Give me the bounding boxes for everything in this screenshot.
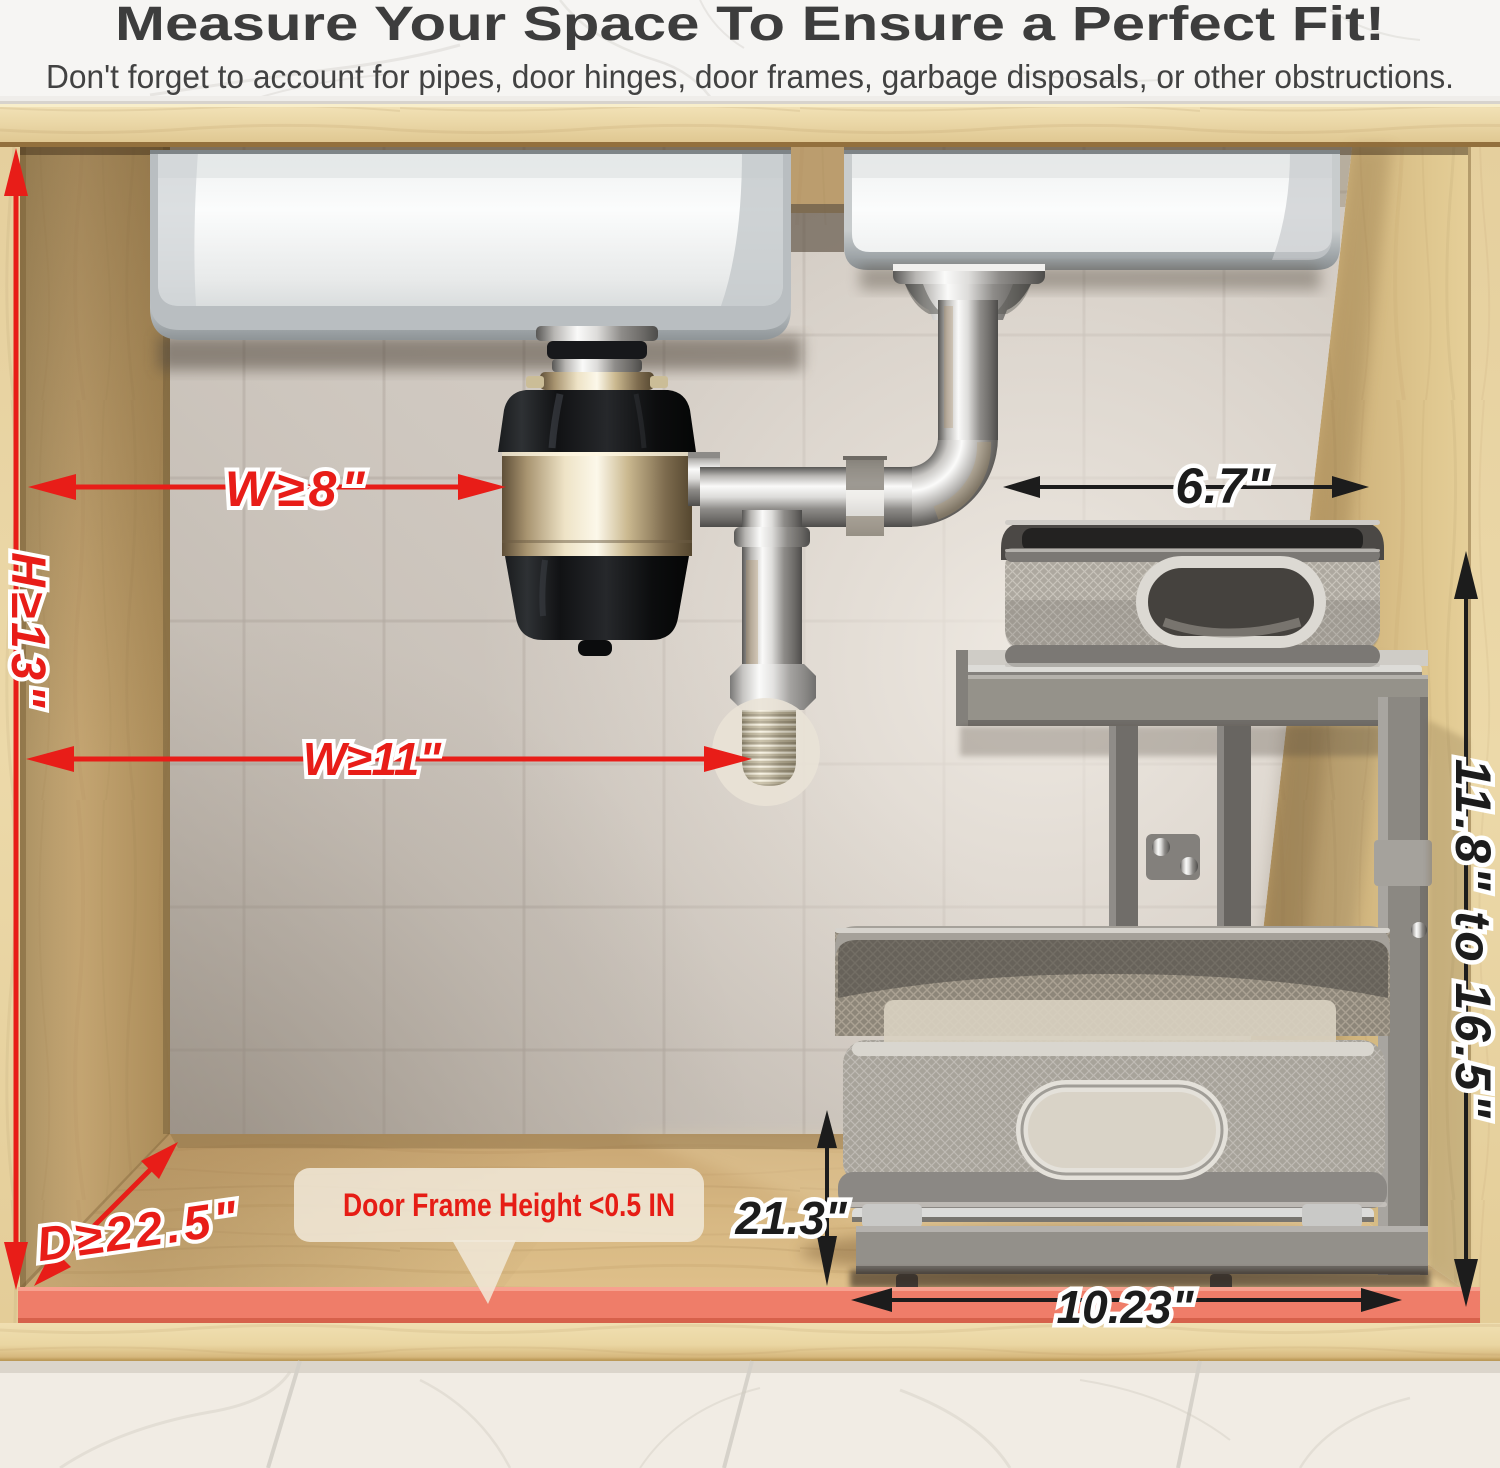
svg-text:11.8" to 16.5": 11.8" to 16.5"	[1445, 759, 1500, 1121]
svg-text:Door Frame Height <0.5 IN: Door Frame Height <0.5 IN	[343, 1187, 675, 1223]
svg-text:H≥13": H≥13"	[1, 552, 54, 712]
svg-text:10.23": 10.23"	[1057, 1281, 1195, 1333]
svg-text:W≥11": W≥11"	[303, 733, 442, 785]
svg-text:21.3": 21.3"	[734, 1192, 848, 1244]
svg-text:Don't forget to account for pi: Don't forget to account for pipes, door …	[46, 58, 1454, 95]
svg-text:W≥8": W≥8"	[225, 461, 369, 517]
svg-text:6.7": 6.7"	[1175, 458, 1271, 514]
svg-text:Measure Your Space To Ensure a: Measure Your Space To Ensure a Perfect F…	[115, 0, 1385, 51]
